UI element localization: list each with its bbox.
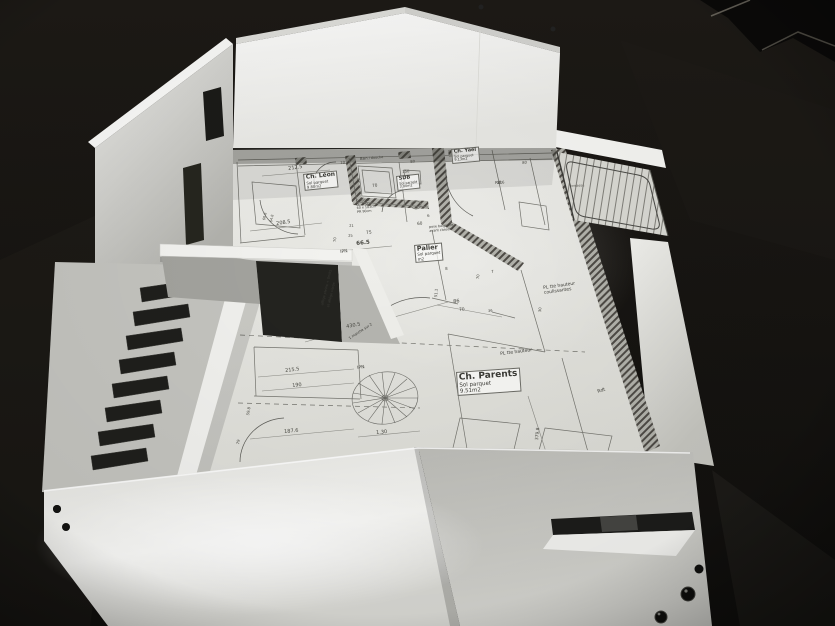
dim-label: 75 xyxy=(366,232,372,237)
dim-label: 51.1 xyxy=(434,289,439,298)
dim-label: 70 xyxy=(459,308,465,313)
dim-label: 30 xyxy=(538,307,543,312)
dim-label: 8 xyxy=(445,267,448,272)
note-line: PR 90cm xyxy=(357,209,377,214)
dim-label: 86 xyxy=(453,299,460,305)
note-bain: Bain / douche xyxy=(360,156,384,162)
note-ipn: IPN xyxy=(357,365,365,371)
note-pose-baignoire: pose baignoire avant cloison ! xyxy=(429,224,454,233)
dim-label: 187.6 xyxy=(284,429,299,436)
dim-label: 59.8 xyxy=(246,407,252,416)
dim-label: 21 xyxy=(349,224,354,228)
dim-label: 70 xyxy=(476,274,481,279)
room-label-ch-yael: Ch. Yael Sol parquet 9.13m2 xyxy=(451,147,480,165)
note-ipn: IPN xyxy=(340,249,348,255)
dim-label: 6 xyxy=(427,214,430,218)
plan-annotations: Ch. Léon Sol parquet 9.80m2 SDB Sol carr… xyxy=(0,0,835,626)
dim-label: 190 xyxy=(292,383,302,390)
note-colonne: Colonne LL + SL 60 x 183cm PR 90cm xyxy=(356,198,377,214)
dim-label: 20 xyxy=(357,178,361,183)
dim-label: 1.30 xyxy=(376,430,388,437)
note-terrasse: terrasse xyxy=(570,185,584,189)
dim-label: 66.5 xyxy=(356,240,370,248)
dim-label: 215.5 xyxy=(285,367,300,374)
dim-label: 60.8 xyxy=(263,212,268,220)
dim-label: 60 xyxy=(417,222,423,227)
dim-label: 212.5 xyxy=(288,165,303,173)
architectural-model-photo: Ch. Léon Sol parquet 9.80m2 SDB Sol carr… xyxy=(0,0,835,626)
dim-label: 64.8 xyxy=(270,214,275,222)
dim-label: 25 xyxy=(348,234,353,238)
dim-label: 10 xyxy=(340,160,345,165)
dim-label: 208.5 xyxy=(276,220,291,228)
note-placard-coulissant: PL tte hauteur coulissantes xyxy=(543,282,576,296)
dim-label: 36 xyxy=(488,310,493,314)
dim-label: 80 xyxy=(410,159,415,164)
dim-label: 80 xyxy=(522,161,527,166)
dim-label: 7 xyxy=(491,270,494,275)
room-label-ch-leon: Ch. Léon Sol parquet 9.80m2 xyxy=(303,170,339,191)
dim-label: 216 xyxy=(497,180,505,185)
room-area: 9.13m2 xyxy=(454,157,477,163)
room-label-palier: Palier Sol parquet m2 xyxy=(414,243,444,264)
dim-label: 79 xyxy=(236,439,241,445)
room-label-sdb: SDB Sol carrelé 3.80m2 xyxy=(396,174,420,192)
note-rdt: Rdt xyxy=(597,388,606,395)
room-label-ch-parents: Ch. Parents Sol parquet 9.51m2 xyxy=(456,368,521,397)
note-placard: PL tte hauteur xyxy=(500,348,532,357)
room-area: 3.80m2 xyxy=(400,184,418,190)
dim-label: 70 xyxy=(333,237,337,242)
dim-label: 70 xyxy=(372,184,378,189)
dim-label: 379.8 xyxy=(536,427,542,440)
dim-label: 150 xyxy=(402,169,410,174)
note-line: avant cloison ! xyxy=(429,228,454,234)
